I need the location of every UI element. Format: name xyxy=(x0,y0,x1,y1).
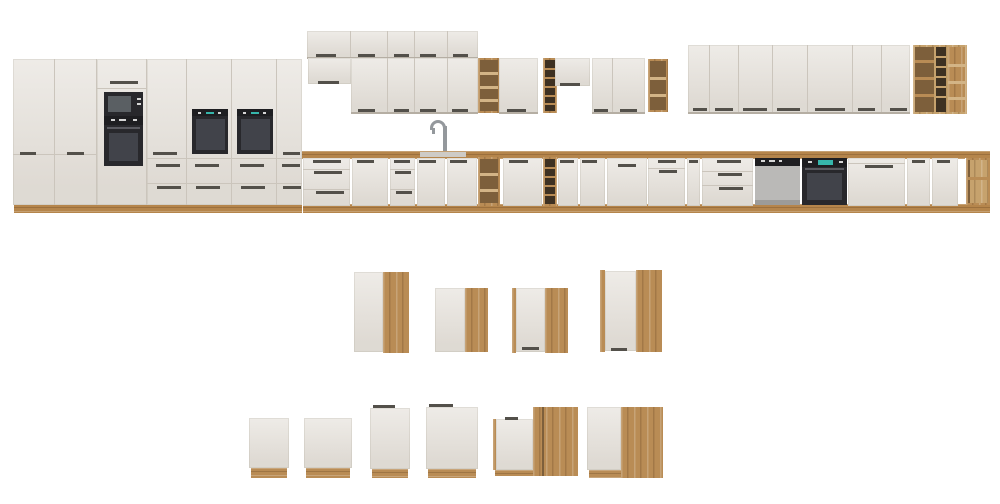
corner-shelf-top xyxy=(963,151,990,158)
cubby-divider xyxy=(545,194,555,196)
control-light xyxy=(769,160,775,162)
door-handle xyxy=(509,160,528,163)
drawer-seam xyxy=(648,168,685,169)
door-seam xyxy=(350,31,351,58)
shelf-board xyxy=(480,189,498,192)
control-light xyxy=(779,160,782,162)
cabinet-bottom-edge xyxy=(351,112,478,114)
control-light xyxy=(243,112,246,114)
shelf-board xyxy=(650,94,666,97)
drawer-handle xyxy=(396,191,412,194)
drawer-handle xyxy=(717,160,741,163)
cubby-divider xyxy=(936,66,946,68)
drawer-seam xyxy=(702,185,753,186)
base-door xyxy=(580,158,605,206)
door-handle xyxy=(937,160,950,163)
door-handle xyxy=(560,160,574,163)
door-handle xyxy=(453,54,468,57)
drawer-handle xyxy=(195,164,219,167)
door-handle xyxy=(522,347,539,350)
shelf-board xyxy=(480,72,498,75)
shelf-board xyxy=(480,99,498,102)
open-shelf-interior xyxy=(480,159,498,203)
door-handle xyxy=(419,160,436,163)
door-handle xyxy=(20,152,36,155)
cubby-divider xyxy=(545,86,555,88)
door-handle xyxy=(611,348,627,351)
wood-panel xyxy=(636,270,662,352)
wood-panel xyxy=(621,407,663,478)
door-handle xyxy=(777,108,800,111)
control-light xyxy=(218,112,221,114)
drawer-handle xyxy=(718,173,742,176)
door-handle xyxy=(618,164,636,167)
oven-handle-bar xyxy=(805,168,844,170)
door-handle xyxy=(689,160,698,163)
shelf-board xyxy=(948,97,965,100)
front-panel xyxy=(249,418,289,468)
front-panel xyxy=(426,407,478,469)
cabinet-door xyxy=(354,272,383,352)
tall-wall-run xyxy=(688,45,910,113)
door-handle xyxy=(743,108,767,111)
control-light xyxy=(198,112,201,114)
oven-display xyxy=(251,112,259,114)
control-light xyxy=(111,119,115,121)
door-handle xyxy=(890,108,907,111)
control-light xyxy=(761,160,765,162)
faucet-pipe xyxy=(443,126,447,151)
base-door xyxy=(558,158,578,206)
door-handle xyxy=(358,54,375,57)
panel-seam xyxy=(542,407,544,476)
front-panel xyxy=(370,408,410,469)
wine-rack-col-left xyxy=(915,47,934,112)
control-light xyxy=(808,161,812,163)
cubby-divider xyxy=(545,176,555,178)
open-shelf-interior xyxy=(650,61,666,110)
drawer-handle xyxy=(157,186,181,189)
cabinet-door xyxy=(435,288,465,352)
cubby-divider xyxy=(936,86,946,88)
cubby-divider xyxy=(936,96,946,98)
plinth xyxy=(372,469,408,478)
top-handle xyxy=(505,417,518,420)
cabinet-door xyxy=(605,271,636,351)
control-light xyxy=(133,119,137,121)
drawer-handle xyxy=(394,160,410,163)
plinth xyxy=(251,468,287,478)
door-handle xyxy=(283,152,300,155)
oven-handle-bar xyxy=(107,127,140,129)
door-seam xyxy=(97,88,147,89)
oven-display xyxy=(206,112,214,114)
wood-panel xyxy=(533,407,578,476)
door-handle xyxy=(715,108,733,111)
plinth xyxy=(589,470,621,478)
door-seam xyxy=(387,58,388,113)
corner-shelf-interior xyxy=(968,160,988,203)
toe-kick xyxy=(14,204,302,213)
drawer-handle xyxy=(196,186,220,189)
door-handle xyxy=(858,108,875,111)
control-light xyxy=(119,119,126,121)
door-handle xyxy=(316,54,336,57)
oven-display xyxy=(818,160,833,165)
plinth xyxy=(428,469,476,478)
microwave-screen xyxy=(108,96,131,112)
control-light xyxy=(263,112,266,114)
drawer-handle xyxy=(314,171,342,174)
oven-window xyxy=(807,173,842,200)
shelf-board xyxy=(948,81,965,84)
oven-window xyxy=(109,133,138,161)
door-handle xyxy=(450,160,467,163)
cubby-divider xyxy=(936,76,946,78)
drawer-seam xyxy=(390,189,415,190)
front-panel xyxy=(587,407,621,470)
drawer-seam xyxy=(147,158,187,159)
drawer-handle xyxy=(282,164,300,167)
drawer-seam xyxy=(702,171,753,172)
door-handle xyxy=(357,160,374,163)
cabinet-front xyxy=(13,59,97,205)
cubby-divider xyxy=(936,56,946,58)
door-handle xyxy=(420,54,436,57)
wood-panel xyxy=(545,288,568,353)
door-seam xyxy=(807,45,808,113)
cubby-divider xyxy=(545,103,555,105)
shelf-board xyxy=(948,64,965,67)
door-seam xyxy=(738,45,739,113)
door-handle xyxy=(110,81,138,84)
door-seam xyxy=(612,58,613,113)
cabinet-door xyxy=(516,288,545,352)
door-handle xyxy=(153,152,177,155)
cubby-divider xyxy=(545,167,555,169)
wall-cabinets xyxy=(592,58,645,113)
oven-window xyxy=(241,119,270,150)
drawer-seam xyxy=(848,163,905,164)
base-door xyxy=(447,158,477,206)
wine-rack-col-right xyxy=(948,47,965,112)
wood-panel xyxy=(465,288,488,352)
drawer-unit xyxy=(702,158,753,206)
shelf-board xyxy=(915,60,934,63)
door-seam xyxy=(414,58,415,113)
drawer-seam xyxy=(390,169,415,170)
shelf-board xyxy=(968,177,988,180)
control-light xyxy=(839,161,843,163)
drawer-unit xyxy=(390,158,415,206)
faucet-spout xyxy=(432,128,435,134)
drawer-seam xyxy=(303,189,350,190)
shelf-board xyxy=(915,94,934,97)
drawer-handle xyxy=(658,160,676,163)
shelf-board xyxy=(915,77,934,80)
front-panel xyxy=(304,418,352,468)
door-seam xyxy=(447,58,448,113)
oven-window xyxy=(196,119,225,150)
drawer-seam xyxy=(187,183,277,184)
shelf-board xyxy=(480,86,498,89)
dishwasher-bottom xyxy=(755,200,800,205)
drawer-seam xyxy=(277,183,302,184)
corner-shelf-shadow xyxy=(968,160,970,203)
door-handle xyxy=(394,54,409,57)
cubby-divider xyxy=(545,95,555,97)
door-handle xyxy=(318,81,339,84)
drawer-seam xyxy=(303,169,350,170)
wall-cabinet xyxy=(499,58,538,113)
drawer-seam xyxy=(277,158,302,159)
door-handle xyxy=(560,83,580,86)
cubby-interior xyxy=(545,159,555,204)
cabinet-bottom-edge xyxy=(592,112,645,114)
cubby-divider xyxy=(545,68,555,70)
cabinet-bottom-edge xyxy=(499,112,538,114)
door-handle xyxy=(582,160,597,163)
drawer-handle xyxy=(719,187,743,190)
sink-base-door xyxy=(417,158,445,206)
plinth xyxy=(306,468,350,478)
shelf-board xyxy=(480,173,498,176)
door-handle xyxy=(865,165,893,168)
wood-panel xyxy=(383,272,409,353)
cubby-divider xyxy=(545,185,555,187)
cabinet-bottom-edge xyxy=(688,112,910,114)
door-seam xyxy=(54,59,55,205)
drawer-handle xyxy=(156,164,180,167)
kitchen-set-product-render xyxy=(0,0,1000,504)
hood-cabinet xyxy=(555,58,590,86)
door-handle xyxy=(659,170,677,173)
door-handle xyxy=(67,152,84,155)
door-seam xyxy=(414,31,415,58)
drawer-handle xyxy=(316,191,344,194)
cubby-divider xyxy=(545,77,555,79)
drawer-handle xyxy=(313,160,341,163)
door-handle xyxy=(693,108,707,111)
door-seam xyxy=(772,45,773,113)
base-door xyxy=(907,158,930,206)
door-handle xyxy=(815,108,845,111)
door-seam xyxy=(709,45,710,113)
base-door xyxy=(352,158,388,206)
plinth xyxy=(495,470,533,476)
base-door xyxy=(687,158,700,206)
base-cabinet xyxy=(648,158,685,206)
drawer-handle xyxy=(395,171,411,174)
door-seam xyxy=(881,45,882,113)
door-seam xyxy=(387,31,388,58)
door-seam xyxy=(447,31,448,58)
drawer-handle xyxy=(240,164,264,167)
drawer-seam xyxy=(187,158,277,159)
drawer-seam xyxy=(147,183,187,184)
shelf-board xyxy=(650,77,666,80)
sink xyxy=(420,152,466,157)
base-door xyxy=(503,158,542,206)
base-door xyxy=(932,158,958,206)
microwave-button xyxy=(137,103,141,105)
drawer-handle xyxy=(241,186,265,189)
microwave-button xyxy=(137,98,141,100)
drawer-handle xyxy=(283,186,301,189)
door-seam xyxy=(852,45,853,113)
front-panel xyxy=(496,419,533,470)
door-handle xyxy=(912,160,925,163)
drawer-unit xyxy=(303,158,350,206)
